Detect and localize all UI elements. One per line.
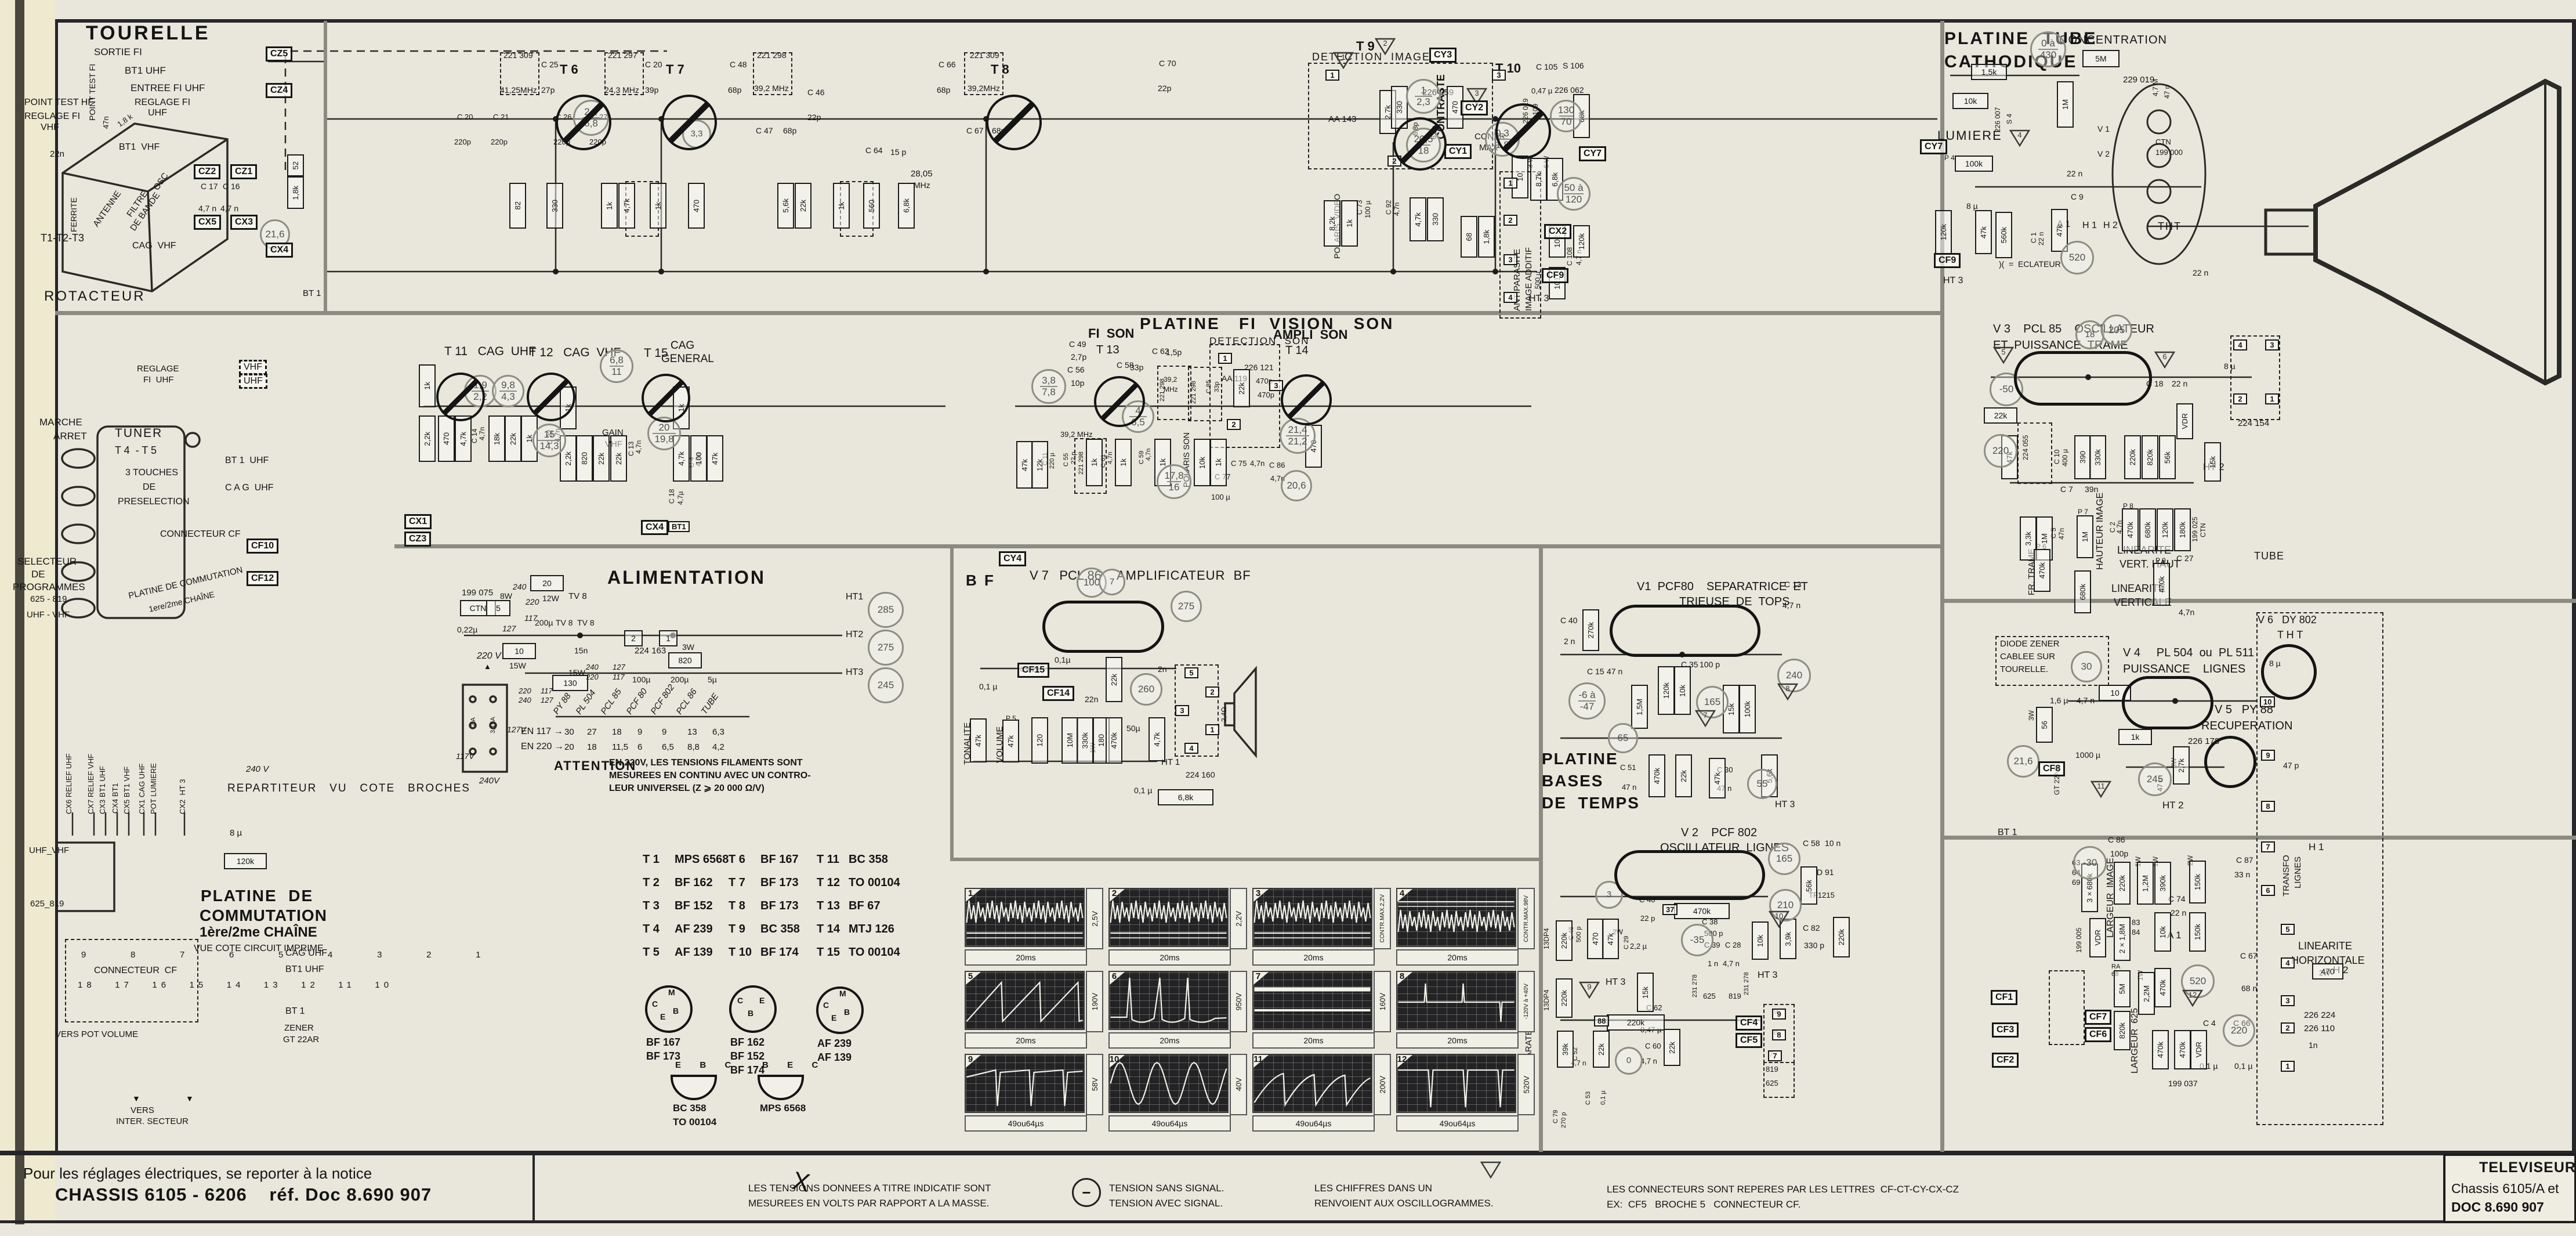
value-box: 22k (1664, 1029, 1680, 1066)
connector-cf14: CF14 (1042, 686, 1074, 701)
title-chassis: Chassis 6105/A et (2451, 1181, 2559, 1197)
transistor-symbol (1281, 374, 1332, 425)
label: T H T (2277, 629, 2303, 641)
footer-divider (532, 1152, 535, 1221)
label: 220 (519, 687, 531, 696)
pin-box: 4 (2233, 339, 2247, 350)
transistor-symbol (1393, 117, 1447, 171)
transistor-part: BF 174 (760, 946, 799, 959)
label: 68 n (2241, 984, 2257, 993)
label: C 20 (645, 60, 662, 70)
label: 15n (574, 646, 588, 656)
oscillogram-timebase: 49ou64µs (1252, 1115, 1375, 1132)
value-box: 330k (1077, 717, 1093, 764)
oscillogram-cell: 5190V20ms (965, 971, 1103, 1053)
label: C 55 (1063, 442, 1070, 467)
tube-symbol (1042, 601, 1164, 653)
label: 240 (513, 583, 526, 592)
value-box: 47k (1016, 441, 1033, 489)
label: C 58 (1803, 839, 1820, 848)
label: 1,5p (1166, 348, 1182, 357)
connector-cz2: CZ2 (194, 164, 220, 179)
voltage-circle: 205 (2101, 315, 2132, 346)
connector-cz4: CZ4 (266, 83, 292, 98)
value-box: 820 (576, 435, 593, 482)
label: C 67 (2240, 952, 2258, 961)
voltage-circle: 50 à120 (1557, 177, 1590, 211)
label: VERS POT VOLUME (55, 1030, 138, 1040)
value-box: 120k (224, 853, 267, 869)
value-box: 8,2k (1324, 200, 1340, 247)
divider (950, 544, 954, 861)
label: ▼ (186, 1094, 194, 1104)
note-connecteurs-1: LES CONNECTEURS SONT REPERES PAR LES LET… (1607, 1184, 1959, 1195)
label: 4,7 n (1723, 960, 1740, 968)
note-signal-1: TENSION SANS SIGNAL. (1109, 1183, 1224, 1194)
label: 33p (1130, 363, 1143, 373)
footer-line1: Pour les réglages électriques, se report… (23, 1165, 372, 1182)
pinout-name: AF 239 (817, 1038, 852, 1049)
label: HAUTEUR IMAGE (2095, 470, 2106, 570)
label: 68p (728, 86, 741, 95)
label: BT 1 UHF (225, 456, 269, 466)
transistor-ref: T 8 (729, 899, 745, 912)
value-box: 2,2M (2138, 972, 2155, 1015)
label: 400 µ (2061, 439, 2069, 467)
label: 13DP4 (1543, 978, 1550, 1011)
value-box: 1k (2118, 729, 2152, 745)
value-box: 470 (438, 415, 455, 462)
label: FERRITE (70, 190, 79, 232)
label: 199 000 (2155, 149, 2183, 157)
transistor-ref: T 4 (643, 923, 660, 935)
label: UHF - VHF (27, 610, 70, 620)
label: 221 298 (1190, 371, 1197, 404)
oscillogram-ref-triangle: 7 (1695, 709, 1716, 728)
label: 39,2 (1164, 376, 1177, 384)
heater-v220: 4,2 (712, 743, 724, 753)
value-box: VDR (2089, 918, 2106, 957)
transistor-ref: T 1 (643, 853, 660, 866)
note-signal-2: TENSION AVEC SIGNAL. (1109, 1198, 1223, 1209)
oscillogram-cell: 11200V49ou64µs (1252, 1054, 1390, 1136)
label: 221 298 (1078, 442, 1085, 475)
oscillogram-cell: 8-120V à +40V20ms (1396, 971, 1534, 1053)
value-box: 220k (1556, 978, 1573, 1018)
note-tensions-1: LES TENSIONS DONNEES A TITRE INDICATIF S… (748, 1183, 991, 1194)
oscillogram-ref-triangle: 1 (1333, 51, 1354, 70)
label: 200µ (535, 619, 553, 628)
label: HT 3 (1943, 276, 1963, 286)
note-tensions-2: MESUREES EN VOLTS PAR RAPPORT A LA MASSE… (748, 1198, 989, 1209)
pin-box: 2 (1227, 419, 1241, 430)
label: 200µ (671, 675, 689, 685)
label: REGLAGE (137, 364, 179, 374)
connector-cf8: CF8 (2038, 761, 2065, 776)
oscillogram-ref-triangle: 8 (1777, 682, 1798, 701)
value-box: 1,5M (1631, 685, 1648, 729)
value-box: 100k (1955, 156, 1993, 172)
oscillogram-ref-triangle: 6 (2154, 350, 2175, 369)
voltage-circle: 520 (2060, 241, 2094, 274)
divider (1539, 544, 1543, 1152)
voltage-circle: 275 (1171, 591, 1202, 622)
label: 12W (542, 594, 559, 603)
label: 240V (479, 776, 499, 786)
value-box: 220k (1607, 1014, 1665, 1031)
transistor-symbol (556, 95, 611, 150)
pin-box: 6 (2261, 885, 2275, 896)
connector-cy2: CY2 (1461, 100, 1488, 115)
label: 229 019 (2123, 75, 2154, 85)
label: CAG UHF (285, 948, 327, 959)
attention-text: MESUREES EN CONTINU AVEC UN CONTRO- (609, 771, 811, 781)
label: 4,7 n (198, 204, 216, 214)
label: 470p (1258, 391, 1274, 400)
voltage-circle: 13070 (1550, 100, 1582, 132)
value-box: 120k (1658, 666, 1675, 715)
oscillogram-voltage: 2,5V (1086, 888, 1103, 949)
voltage-circle: 7 (1099, 569, 1125, 595)
label: 3W (682, 643, 694, 652)
label: FI SON (1088, 327, 1134, 341)
label: CX3 BT1 UHF (99, 759, 107, 814)
label: 18 17 16 15 14 13 12 11 10 (78, 981, 393, 991)
value-box: 6,8k (898, 183, 915, 229)
transistor-part: MTJ 126 (849, 923, 894, 935)
value-box: 120k (2157, 508, 2173, 551)
label: C 27 (2176, 554, 2194, 563)
oscillogram-voltage: 950V (1230, 971, 1247, 1032)
label: 39,2 MHz (1060, 431, 1093, 439)
transistor-part: BF 162 (675, 876, 713, 889)
label: 625 (1766, 1079, 1778, 1088)
voltage-circle: 3,87,8 (1031, 369, 1066, 404)
oscillogram-cell: 12520V49ou64µs (1396, 1054, 1534, 1136)
label: 9 8 7 6 5 4 3 2 1 (81, 951, 487, 960)
label: CONNECTEUR CF (94, 966, 177, 976)
label: SELECTEUR (17, 556, 77, 567)
label: BT1 VHF (119, 142, 160, 153)
note-chiffres-2: RENVOIENT AUX OSCILLOGRAMMES. (1314, 1198, 1494, 1209)
heater-v117: 27 (587, 728, 597, 738)
heater-v117: 9 (637, 728, 642, 738)
value-box: 22k (505, 415, 521, 462)
pin-box: 3 (2281, 995, 2295, 1006)
value-box: 20 (530, 575, 564, 591)
label: 4,7n (1393, 191, 1401, 216)
label: 83 (2132, 919, 2140, 927)
label: C 7 (2060, 485, 2073, 494)
label: C 9 (2071, 193, 2084, 202)
label: 33p (1213, 369, 1220, 392)
scan-bottom (0, 1220, 2576, 1223)
label: 22p (1158, 84, 1171, 93)
label: C 4 (2203, 1019, 2216, 1028)
label: 1 n (1708, 960, 1718, 968)
label: 47n (102, 116, 111, 129)
value-box: 22k (1984, 407, 2017, 424)
value-box: 22k (593, 435, 610, 482)
label: C 86 (1269, 461, 1285, 470)
label: BT1 UHF (125, 65, 166, 76)
value-box: 470 (2312, 963, 2343, 980)
minus-icon: − (1072, 1178, 1101, 1207)
label: 0,1µ (1055, 656, 1071, 665)
label: C 17 (201, 182, 218, 191)
label: 69 (2072, 879, 2080, 887)
border-top (55, 19, 2576, 23)
label: CONNECTEUR CF (160, 529, 241, 540)
value-box: 1,2M (2137, 862, 2154, 905)
label: 500 µ (1534, 261, 1542, 289)
label: 117 (613, 673, 625, 682)
value-box: 150k (2189, 861, 2206, 903)
label: 224 160 (1186, 771, 1215, 780)
transistor-symbol (527, 373, 575, 421)
label: TV 8 TV 8 (556, 619, 595, 628)
heater-v117: 6,3 (712, 728, 724, 738)
norm-pins-box (2049, 970, 2085, 1045)
label: CTN (2155, 138, 2171, 147)
transistor-ref: T 14 (817, 923, 840, 935)
connector-cf10: CF10 (247, 539, 278, 554)
label: CX1 CAG UHF (138, 759, 147, 814)
pin-box: 2 (2281, 1022, 2295, 1033)
value-box: 2,2k (419, 415, 436, 462)
label: 13DP4 (1543, 917, 1550, 949)
connector-cz5: CZ5 (266, 46, 292, 62)
label: TUBE (2254, 550, 2284, 562)
oscillogram-timebase: 20ms (1108, 949, 1231, 966)
label: 500 p (1575, 915, 1582, 942)
label: T1-T2-T3 (41, 232, 84, 244)
tube-symbol (1614, 850, 1765, 900)
oscillogram-timebase: 20ms (965, 1032, 1087, 1049)
label: IMAGE ADDITIF (1524, 190, 1534, 311)
oscillogram-timebase: 49ou64µs (965, 1115, 1087, 1132)
label: 22p (807, 113, 821, 122)
pin-box: 3 (1175, 705, 1189, 716)
divider (55, 311, 1943, 315)
label: HT1 (846, 592, 863, 602)
oscillogram-timebase: 49ou64µs (1396, 1115, 1519, 1132)
pin-box: 2 (1503, 215, 1517, 226)
label: 220p (454, 138, 471, 147)
value-box: 10M (1061, 717, 1078, 764)
transistor-ref: T 5 (643, 946, 660, 959)
pin-box: 2 (2233, 393, 2247, 404)
label: 226 224 (2304, 1011, 2335, 1021)
value-box: 560k (1995, 212, 2012, 258)
oscillogram-cell: 12,5V20ms (965, 888, 1103, 970)
value-box: 1k (833, 183, 850, 229)
label: 220 µ (1049, 441, 1056, 469)
label: 100 µ (1211, 493, 1230, 502)
label: COMMUTATION (200, 906, 327, 924)
pin-box: 3 (1492, 70, 1506, 81)
value-box: 470k (2034, 549, 2050, 592)
value-box: 4,7k (1410, 197, 1426, 241)
label: VERT. HAUT (2120, 558, 2180, 570)
label: SORTIE FI (94, 46, 142, 57)
heater-v220: 18 (587, 743, 597, 753)
label: BASES (1542, 772, 1603, 790)
pin-box: 5 (1184, 667, 1198, 678)
pinout-letters: E B C (675, 1061, 736, 1071)
pin-box: 4 (1184, 743, 1198, 754)
connector-cy4: CY4 (999, 551, 1026, 566)
label: )( = ECLATEUR (1999, 260, 2061, 269)
label: ZENER (284, 1024, 314, 1033)
label: TUNER (115, 427, 162, 440)
voltage-circle: 65 (1608, 723, 1638, 753)
label: 10p (1071, 379, 1084, 388)
label: 625_819 (30, 899, 64, 909)
value-box: 220k (1556, 920, 1573, 961)
label: MARCHE (39, 417, 82, 428)
label: 199 075 (462, 588, 493, 598)
value-box: 4,7k (618, 183, 635, 229)
value-box: 47k (1602, 919, 1619, 959)
label: CTN (2200, 518, 2207, 537)
label: 240 (519, 696, 531, 705)
label: C 14 (471, 419, 479, 443)
label: 27p (541, 86, 555, 95)
label: C 40 (1560, 616, 1578, 626)
value-box: 390k (2154, 862, 2171, 905)
oscillogram-timebase: 20ms (965, 949, 1087, 966)
value-box: 1k (1341, 200, 1358, 247)
label: 240 (586, 663, 599, 672)
transistor-part: BF 67 (849, 899, 880, 912)
label: V 6 DY 802 (2258, 614, 2317, 626)
connector-cf1: CF1 (1991, 990, 2017, 1005)
value-box: 47k (707, 435, 723, 482)
label: ▼ (132, 1094, 140, 1104)
label: CONCENTRATION (2059, 34, 2167, 46)
oscillogram-cell: 6950V20ms (1108, 971, 1247, 1053)
label: RA (2111, 963, 2120, 970)
value-box: 560 (863, 183, 880, 229)
value-box: 330k (2089, 435, 2106, 479)
label: 100 p (1700, 660, 1720, 670)
title-doc: DOC 8.690 907 (2451, 1200, 2544, 1215)
label: V 4 PL 504 ou PL 511 (2123, 646, 2254, 659)
voltage-circle: 17,816 (1157, 464, 1191, 499)
heater-v117: 18 (612, 728, 622, 738)
transistor-part: AF 139 (675, 946, 713, 959)
connector-cf5: CF5 (1736, 1033, 1762, 1048)
label: H 2 (2103, 221, 2118, 231)
label: 0,1 µ (1134, 786, 1152, 796)
transistor-part: BF 167 (760, 853, 799, 866)
value-box: 8,7k (1530, 158, 1547, 201)
value-box: 22k (795, 183, 811, 229)
value-box: 470 (1587, 919, 1604, 959)
value-box: 47k (970, 718, 987, 762)
value-box: 47k (1002, 720, 1019, 762)
label: 4,7n (1250, 460, 1265, 468)
label: C 49 (1069, 340, 1086, 349)
label: CABLEE SUR (2000, 652, 2055, 662)
title-brand: TELEVISEURS (2479, 1159, 2576, 1176)
oscillogram-voltage: -120V à +40V (1517, 971, 1535, 1032)
transistor-part: BF 152 (675, 899, 713, 912)
connector-cx4: CX4 (641, 520, 668, 535)
label: B F (966, 572, 995, 589)
value-box: 22k (1593, 1031, 1610, 1068)
oscillogram-ref-triangle: 10 (1769, 910, 1789, 928)
tube-symbol (2014, 351, 2152, 406)
label: T 11 CAG UHF (444, 345, 536, 359)
label: TOURELLE (86, 22, 211, 44)
pin-box: 88 (1594, 1015, 1609, 1027)
label: 231 278 (1691, 966, 1698, 998)
label: 10 n (1825, 839, 1840, 848)
heater-v117: 9 (662, 728, 666, 738)
pin-box: 1 (1218, 353, 1232, 364)
label: 68p (937, 86, 950, 95)
label: 0,1 µ (979, 682, 997, 692)
label: V1 PCF80 SEPARATRICE ET (1637, 580, 1808, 593)
label: V 2 (2097, 150, 2110, 159)
value-box: 5M (2082, 50, 2120, 67)
label: 226 110 (2304, 1024, 2335, 1034)
label: 33 n (2234, 870, 2250, 880)
pin-box: 10 (2260, 696, 2275, 707)
label: AA 143 (1328, 115, 1356, 125)
heater-row-117-label: EN 117 → (521, 727, 563, 737)
label: 127 (613, 663, 625, 672)
label: 100µ (632, 675, 650, 685)
value-box: 22k (610, 435, 627, 482)
label: 625 - 819 (30, 595, 67, 605)
label: 0,1 µ (2234, 1062, 2252, 1071)
connector-cz3: CZ3 (404, 532, 431, 547)
oscillogram-timebase: 20ms (1252, 1032, 1375, 1049)
value-box: 470k (1674, 903, 1730, 919)
label: 100 µ (1364, 190, 1372, 218)
value-box: 10k (1752, 921, 1769, 960)
label: C 64 (865, 146, 883, 156)
connector-cy3: CY3 (1429, 48, 1457, 63)
transistor-pinout: CMBE (816, 986, 864, 1034)
connector-cf7: CF7 (2085, 1010, 2111, 1025)
value-box: 10k (1194, 439, 1211, 486)
value-box: 680k (2074, 570, 2091, 613)
voltage-circle: 285 (868, 592, 904, 628)
border-right (2572, 19, 2576, 1223)
label: PUISSANCE LIGNES (2123, 663, 2245, 675)
label: S 106 (1563, 62, 1584, 71)
value-box: 470k (1649, 754, 1665, 797)
value-box: 820k (2114, 1011, 2131, 1050)
connector-cx5: CX5 (194, 215, 221, 230)
label: VHF (41, 122, 59, 133)
label: 8 µ (230, 829, 242, 839)
label: 22 n (2193, 269, 2208, 278)
schematic-sheet: LES TENSIONS DONNEES A TITRE INDICATIF S… (0, 0, 2576, 1236)
value-box: 39k (1557, 1031, 1574, 1068)
label: 819 (1729, 992, 1741, 1001)
label: 4,7n (1107, 439, 1114, 464)
tube-symbol (2204, 736, 2256, 788)
label: 2,2 µ (1630, 942, 1647, 951)
divider (1940, 21, 1944, 1152)
label: HT3 (846, 667, 863, 678)
oscillogram-ref-triangle: 11 (2090, 780, 2111, 798)
